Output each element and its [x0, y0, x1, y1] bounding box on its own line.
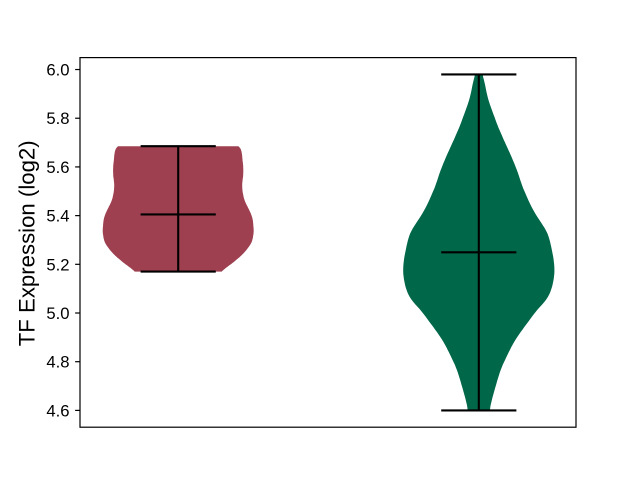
svg-text:4.8: 4.8	[46, 353, 69, 372]
svg-text:5.6: 5.6	[46, 158, 69, 177]
svg-text:5.4: 5.4	[46, 207, 69, 226]
svg-text:5.0: 5.0	[46, 304, 69, 323]
svg-text:5.8: 5.8	[46, 109, 69, 128]
svg-text:6.0: 6.0	[46, 61, 69, 80]
svg-text:TF Expression (log2): TF Expression (log2)	[14, 140, 39, 346]
svg-text:4.6: 4.6	[46, 401, 69, 420]
svg-text:5.2: 5.2	[46, 255, 69, 274]
